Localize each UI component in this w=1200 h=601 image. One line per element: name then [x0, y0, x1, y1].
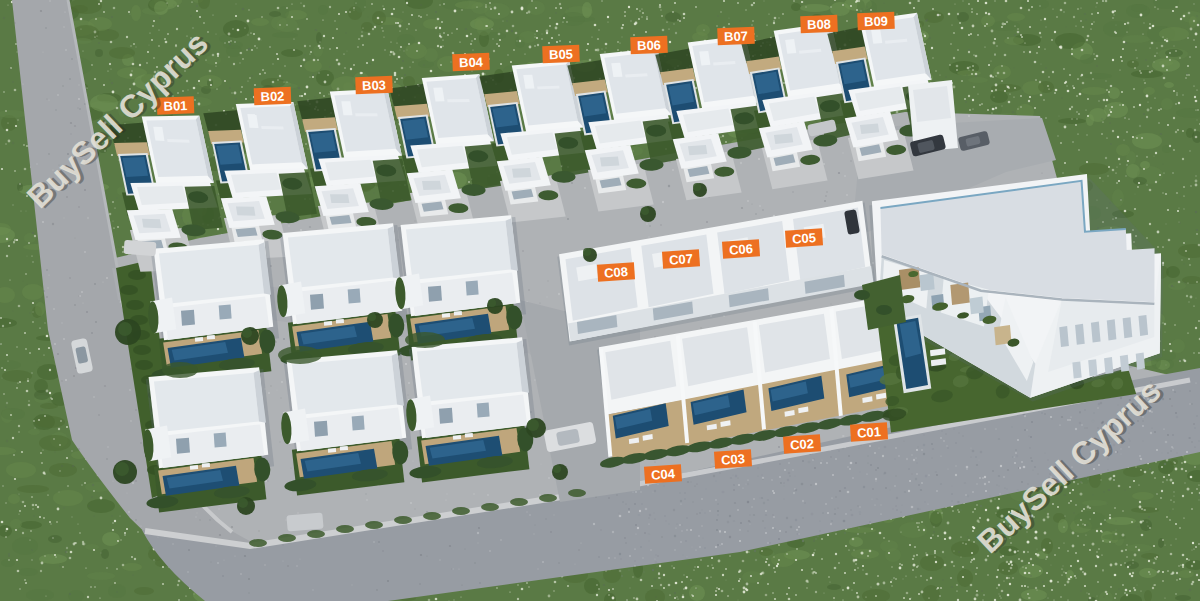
svg-text:C01: C01 — [857, 424, 882, 441]
svg-text:C02: C02 — [790, 436, 815, 453]
svg-text:B02: B02 — [260, 88, 284, 104]
svg-text:B07: B07 — [724, 28, 748, 44]
svg-text:B05: B05 — [549, 46, 573, 62]
svg-text:B04: B04 — [459, 54, 484, 70]
svg-text:B08: B08 — [807, 16, 831, 32]
svg-text:C07: C07 — [669, 251, 694, 268]
svg-text:B03: B03 — [362, 77, 386, 93]
svg-text:C06: C06 — [729, 241, 754, 258]
svg-text:C08: C08 — [604, 264, 629, 281]
svg-text:C03: C03 — [721, 451, 746, 468]
svg-text:C04: C04 — [651, 466, 677, 483]
svg-text:B06: B06 — [637, 37, 661, 53]
svg-text:B09: B09 — [864, 13, 888, 29]
svg-text:C05: C05 — [792, 230, 817, 247]
